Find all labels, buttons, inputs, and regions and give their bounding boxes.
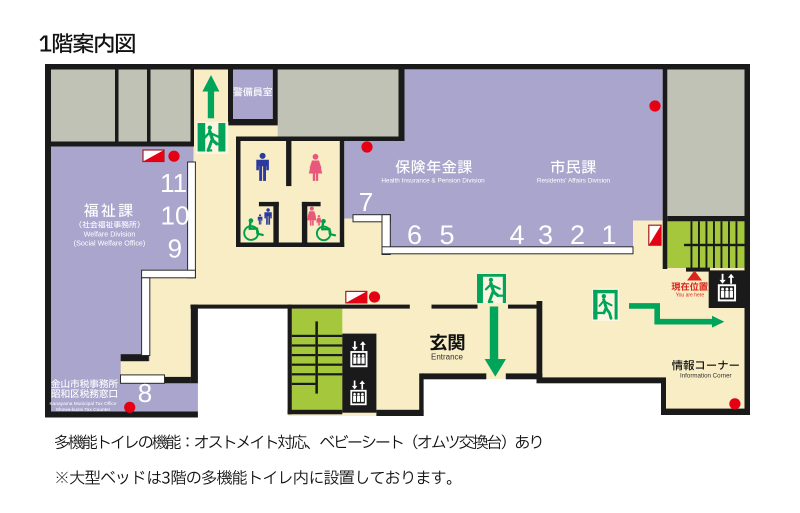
svg-text:Showa-kuzei Tax Counter: Showa-kuzei Tax Counter [56, 407, 111, 413]
svg-text:Health Insurance & Pension Div: Health Insurance & Pension Division [381, 178, 485, 185]
svg-text:Information Corner: Information Corner [680, 373, 732, 380]
svg-text:4: 4 [509, 220, 524, 250]
svg-text:9: 9 [168, 233, 182, 263]
svg-text:5: 5 [439, 220, 454, 250]
svg-text:2: 2 [570, 220, 585, 250]
svg-text:1: 1 [601, 220, 616, 250]
svg-text:6: 6 [407, 220, 422, 250]
svg-text:(Social Welfare Office): (Social Welfare Office) [74, 239, 146, 248]
svg-text:3: 3 [538, 220, 553, 250]
svg-text:Residents' Affairs Division: Residents' Affairs Division [537, 178, 611, 185]
svg-text:10: 10 [161, 201, 190, 231]
svg-text:Entrance: Entrance [431, 353, 464, 362]
svg-text:11: 11 [160, 168, 187, 198]
svg-text:Kanayama Municipal Tax Office: Kanayama Municipal Tax Office [49, 401, 116, 407]
svg-text:7: 7 [359, 187, 373, 217]
svg-text:You are here: You are here [676, 293, 705, 299]
svg-text:8: 8 [138, 378, 152, 408]
svg-text:Welfare Division: Welfare Division [84, 230, 136, 239]
